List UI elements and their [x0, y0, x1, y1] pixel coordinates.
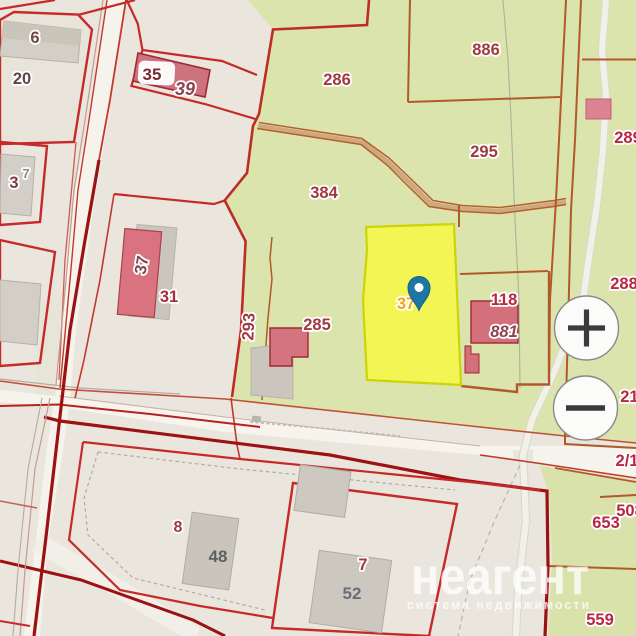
svg-text:118: 118	[491, 291, 518, 309]
svg-text:37: 37	[132, 255, 153, 276]
svg-text:система недвижимости: система недвижимости	[407, 598, 589, 612]
svg-text:31: 31	[160, 288, 178, 306]
svg-text:2/1: 2/1	[616, 452, 636, 470]
svg-text:219: 219	[620, 388, 636, 406]
svg-text:3: 3	[9, 174, 18, 192]
svg-text:39: 39	[175, 79, 195, 99]
svg-text:285: 285	[303, 316, 331, 334]
svg-text:52: 52	[343, 584, 362, 603]
svg-text:881: 881	[490, 323, 518, 341]
svg-text:384: 384	[310, 184, 338, 202]
svg-text:7: 7	[358, 556, 367, 574]
svg-text:48: 48	[209, 547, 228, 566]
svg-text:288: 288	[610, 275, 636, 293]
svg-text:286: 286	[323, 71, 351, 89]
svg-text:6: 6	[30, 29, 39, 47]
svg-text:293: 293	[239, 313, 258, 341]
svg-text:559: 559	[586, 611, 614, 629]
svg-text:653: 653	[592, 514, 620, 532]
svg-text:886: 886	[472, 41, 500, 59]
svg-text:35: 35	[143, 65, 162, 84]
svg-text:7: 7	[22, 166, 29, 181]
svg-text:20: 20	[13, 70, 31, 88]
svg-text:289: 289	[614, 129, 636, 147]
svg-text:8: 8	[174, 519, 183, 536]
svg-text:295: 295	[470, 143, 498, 161]
